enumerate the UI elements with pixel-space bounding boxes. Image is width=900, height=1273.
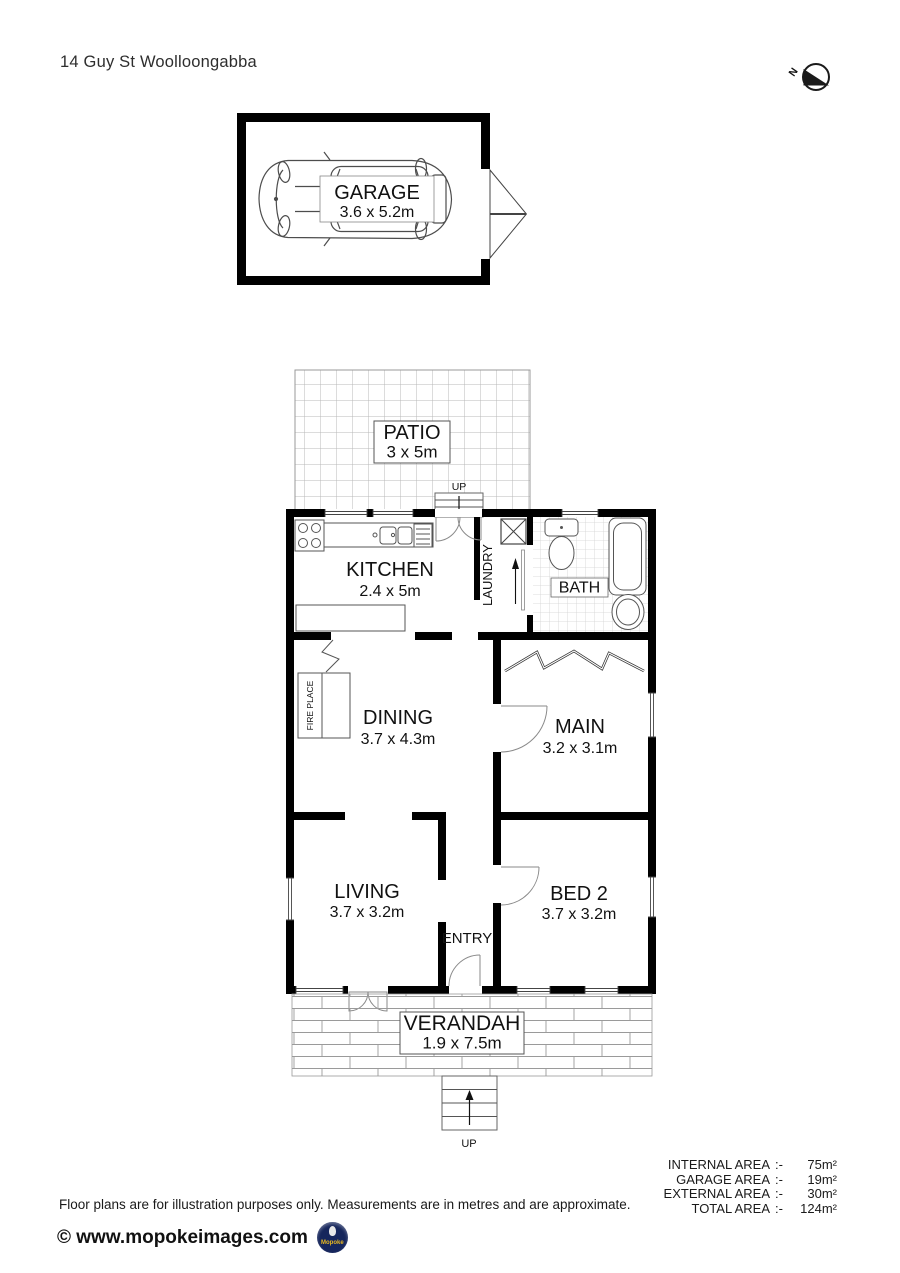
main-bedroom: MAIN 3.2 x 3.1m [505,651,644,757]
garage-door-leaf [490,170,526,214]
verandah-label: VERANDAH [404,1012,521,1035]
front-stairs: UP [442,1076,497,1150]
bathtub [609,518,646,595]
living-dims: 3.7 x 3.2m [330,904,405,921]
area-label: TOTAL AREA [691,1202,770,1217]
bath-label: BATH [559,580,600,597]
laundry-label: LAUNDRY [480,544,495,606]
north-label: N [786,66,800,79]
patio-label: PATIO [383,422,440,444]
area-value: 30m² [791,1187,837,1202]
kitchen-bench [296,605,405,631]
front-stairs-up-label: UP [461,1138,476,1150]
logo-text: Mopoke [317,1240,348,1246]
patio-stairs-up-label: UP [452,481,467,493]
copyright-text: © www.mopokeimages.com [57,1227,308,1249]
bed2-door [493,865,539,905]
window [648,877,656,917]
robe-rail [505,651,644,671]
area-value: 75m² [791,1158,837,1173]
area-label: INTERNAL AREA [668,1158,770,1173]
window [562,509,598,517]
area-label: GARAGE AREA [676,1173,770,1188]
bath-room: BATH [533,517,648,632]
area-summary: INTERNAL AREA:-75m² GARAGE AREA:-19m² EX… [664,1158,837,1216]
disclaimer-text: Floor plans are for illustration purpose… [59,1197,631,1212]
fireplace: FIRE PLACE [298,640,350,738]
garage-door-leaf [490,215,526,259]
area-row: GARAGE AREA:-19m² [664,1173,837,1188]
laundry-room: LAUNDRY [480,519,526,610]
fireplace-label: FIRE PLACE [305,680,315,730]
sliding-door [522,550,525,610]
copyright-line: © www.mopokeimages.com Mopoke [57,1222,348,1253]
window [286,878,294,920]
window [373,509,413,517]
main-dims: 3.2 x 3.1m [543,740,618,757]
area-value: 19m² [791,1173,837,1188]
north-arrow-icon: N [786,64,829,90]
drainer [414,524,432,547]
entry-door [449,955,482,994]
bed2-dims: 3.7 x 3.2m [542,906,617,923]
floorplan-page: { "title": "14 Guy St Woolloongabba", "c… [0,0,900,1273]
owl-icon [329,1226,336,1236]
entry-label: ENTRY [442,930,493,947]
mopoke-logo-icon: Mopoke [317,1222,348,1253]
window [648,693,656,737]
living-label: LIVING [334,881,400,903]
verandah-dims: 1.9 x 7.5m [422,1034,501,1053]
bed2-label: BED 2 [550,883,608,905]
dining-room: DINING 3.7 x 4.3m FIRE PLACE [298,640,435,748]
area-value: 124m² [791,1202,837,1217]
kitchen-dims: 2.4 x 5m [359,583,420,600]
basin [612,595,644,630]
window [296,986,343,994]
area-row: EXTERNAL AREA:-30m² [664,1187,837,1202]
garage-room: GARAGE 3.6 x 5.2m [237,113,526,285]
area-row: INTERNAL AREA:-75m² [664,1158,837,1173]
interior-doors [348,704,547,1011]
floorplan-drawing: N GARAGE 3.6 x 5.2m PATIO [0,0,900,1273]
dining-label: DINING [363,707,433,729]
window [517,986,550,994]
garage-dims: 3.6 x 5.2m [340,204,415,221]
area-row: TOTAL AREA:-124m² [664,1202,837,1217]
garage-label: GARAGE [334,182,420,204]
window [325,509,367,517]
dining-dims: 3.7 x 4.3m [361,731,436,748]
main-label: MAIN [555,716,605,738]
kitchen-room: KITCHEN 2.4 x 5m [295,520,434,631]
area-label: EXTERNAL AREA [664,1187,770,1202]
kitchen-label: KITCHEN [346,559,434,581]
patio-area: PATIO 3 x 5m [295,370,530,511]
verandah-area: VERANDAH 1.9 x 7.5m [292,994,652,1076]
main-door [493,704,547,752]
window [585,986,618,994]
patio-dims: 3 x 5m [386,443,437,462]
